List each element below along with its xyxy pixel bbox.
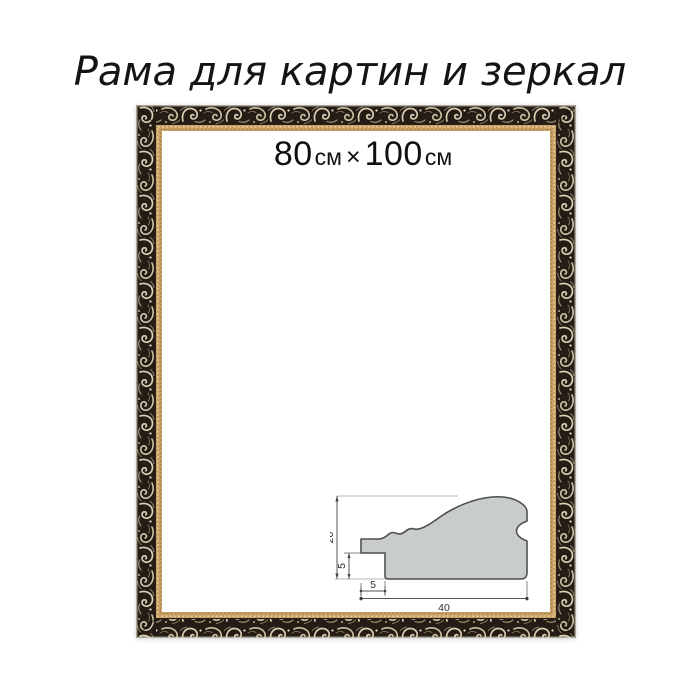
dimension-rabbet-height: 5 [336,553,351,579]
dimension-lip-width: 5 [360,579,387,596]
size-height-unit: см [425,144,452,171]
dimension-total-width: 40 [360,597,529,614]
dim-label-total-width: 40 [438,602,450,614]
moulding-profile-shape [361,497,527,579]
size-width-value: 80 [274,135,313,174]
multiply-sign: × [346,143,361,172]
size-width-unit: см [315,144,342,171]
dim-label-rabbet-height: 5 [336,563,348,569]
profile-diagram: 20 5 5 40 [330,487,542,615]
dim-label-total-height: 20 [330,532,336,544]
dim-label-lip-width: 5 [370,579,376,591]
size-height-value: 100 [365,135,423,174]
product-card: Рама для картин и зеркал [0,0,700,700]
product-title: Рама для картин и зеркал [0,50,700,94]
size-label: 80 см × 100 см [274,135,452,174]
